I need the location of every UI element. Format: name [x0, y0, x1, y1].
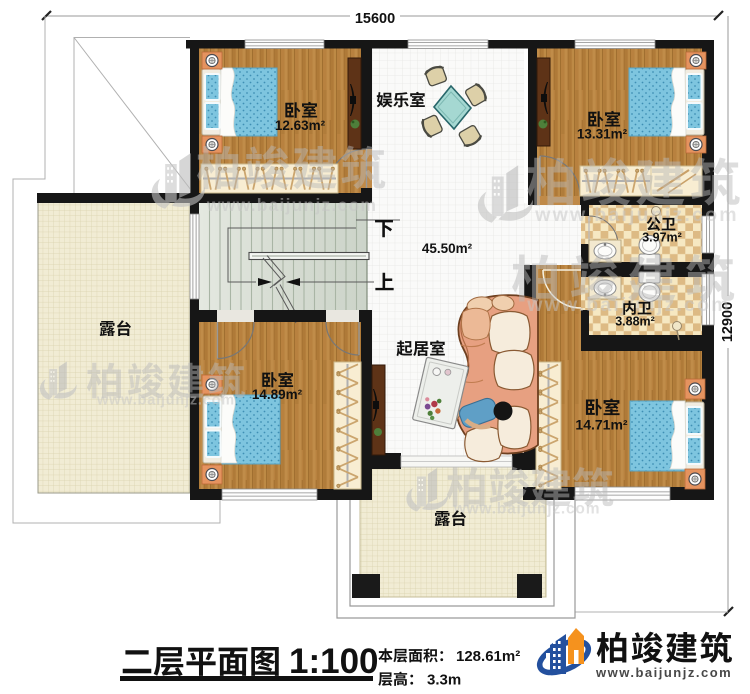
- svg-text:15600: 15600: [355, 11, 395, 27]
- svg-text:3.88m²: 3.88m²: [615, 315, 655, 329]
- svg-text:www.baijunjz.com: www.baijunjz.com: [96, 393, 235, 409]
- svg-text:14.89m²: 14.89m²: [252, 387, 303, 402]
- svg-text:13.31m²: 13.31m²: [577, 127, 628, 142]
- svg-text:www.baijunjz.com: www.baijunjz.com: [206, 195, 377, 215]
- svg-text:www.baijunjz.com: www.baijunjz.com: [595, 665, 732, 680]
- svg-text:3.97m²: 3.97m²: [642, 231, 682, 245]
- svg-text:45.50m²: 45.50m²: [422, 241, 473, 256]
- svg-text:12.63m²: 12.63m²: [275, 118, 326, 133]
- svg-text:www.baijunjz.com: www.baijunjz.com: [453, 501, 601, 518]
- svg-text:3.3m: 3.3m: [427, 672, 461, 689]
- svg-text:1:100: 1:100: [289, 642, 379, 681]
- svg-text:www.baijunjz.com: www.baijunjz.com: [534, 204, 739, 226]
- svg-text:14.71m²: 14.71m²: [575, 417, 627, 433]
- svg-text:128.61m²: 128.61m²: [456, 648, 520, 665]
